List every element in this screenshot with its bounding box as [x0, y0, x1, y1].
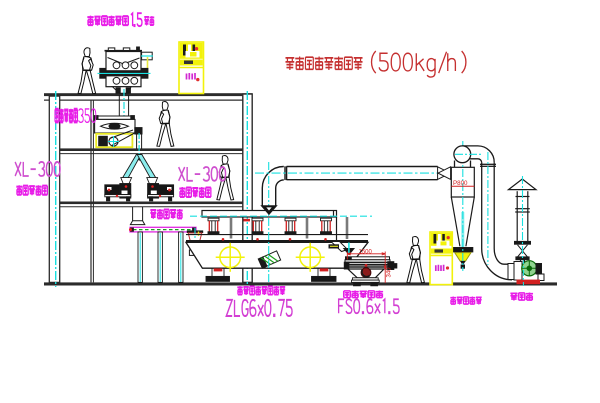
svg-text:P800: P800 [453, 180, 468, 187]
svg-text:340: 340 [387, 267, 393, 278]
svg-text:1500: 1500 [359, 250, 373, 256]
